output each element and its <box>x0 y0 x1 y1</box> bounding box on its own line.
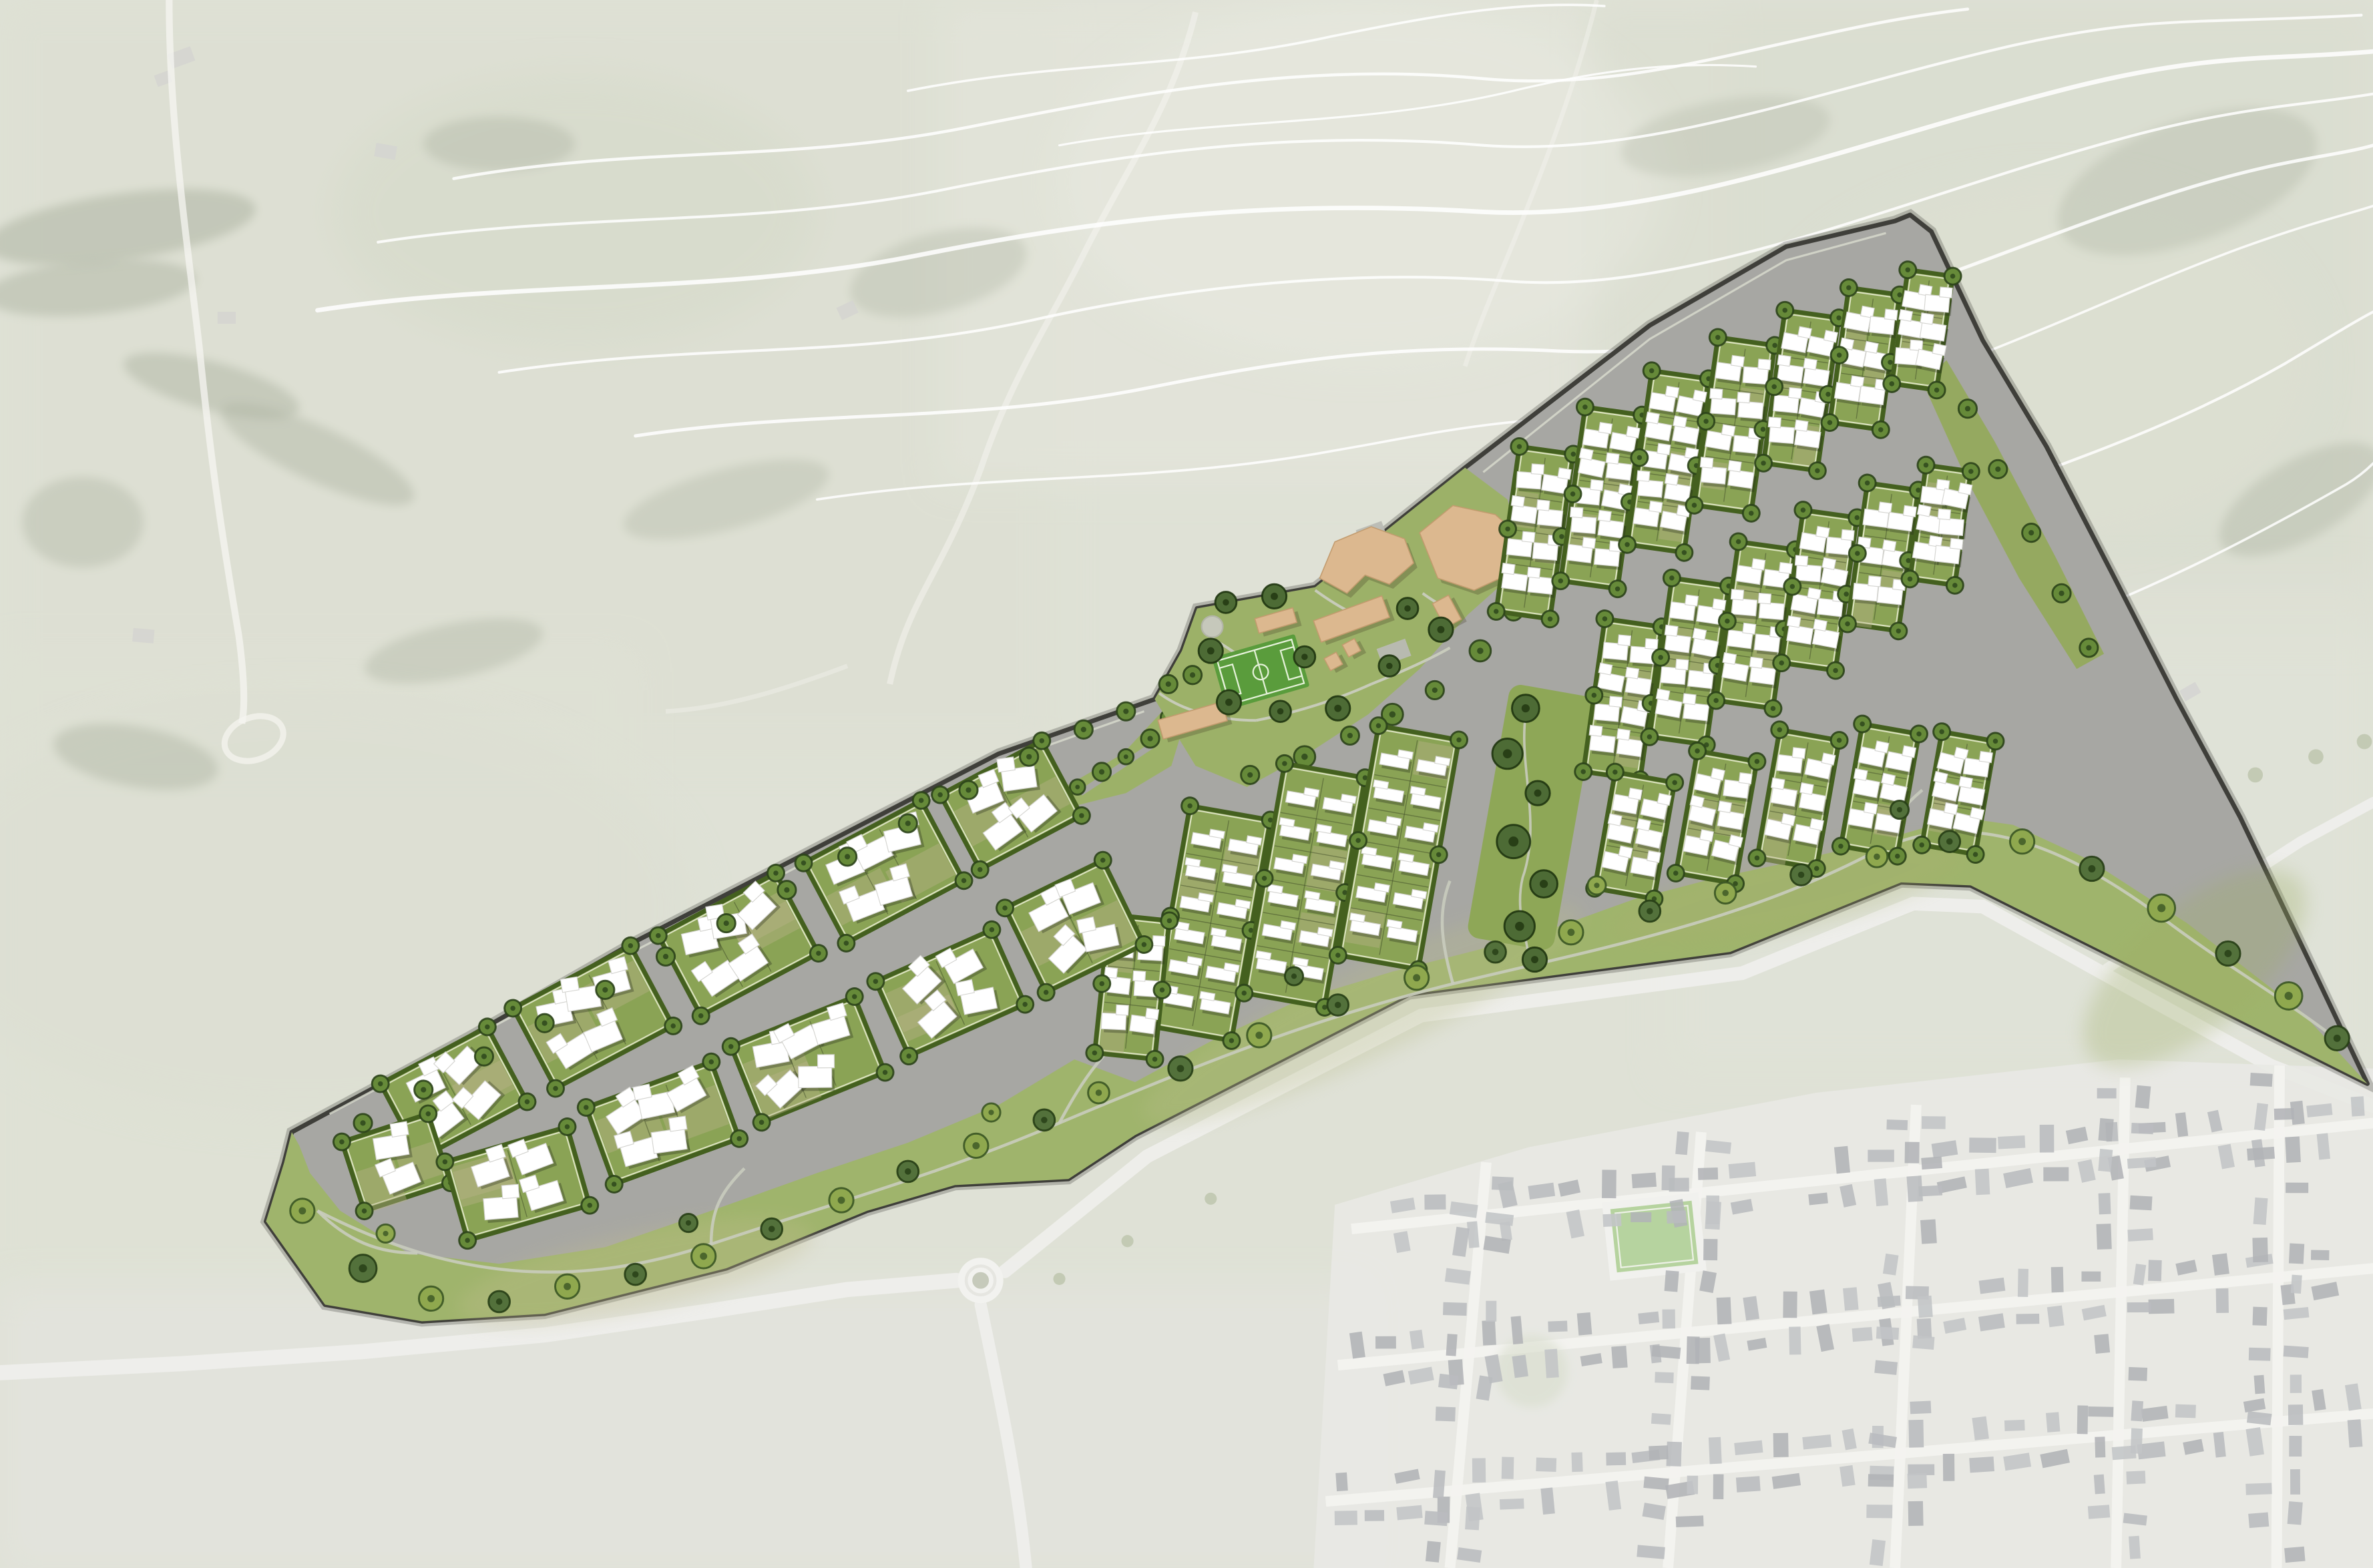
tree <box>2080 639 2098 657</box>
tree <box>1916 456 1935 475</box>
tree <box>761 1218 783 1240</box>
tree <box>1093 975 1111 993</box>
tree <box>1470 640 1491 662</box>
tree <box>1840 278 1858 297</box>
tree <box>1697 412 1715 431</box>
tree <box>1946 576 1964 595</box>
tree <box>1618 535 1637 554</box>
tree <box>2275 983 2302 1010</box>
tree <box>1588 876 1606 894</box>
tree <box>1492 738 1522 768</box>
tree <box>1584 686 1603 704</box>
tree <box>1890 800 1908 818</box>
tree <box>415 1081 433 1099</box>
tree <box>625 1264 646 1285</box>
tree <box>596 981 614 999</box>
tree <box>1285 967 1303 985</box>
tree <box>982 1103 1000 1121</box>
tree <box>1487 602 1506 621</box>
tree <box>1709 328 1727 346</box>
tree <box>1074 720 1092 738</box>
tree <box>1830 346 1849 364</box>
tree <box>1070 780 1085 795</box>
tree <box>1405 966 1429 990</box>
tree <box>1765 377 1783 396</box>
tree <box>1294 646 1315 668</box>
tree <box>1793 501 1812 519</box>
tree <box>1820 413 1839 432</box>
tree <box>1530 870 1558 898</box>
tree <box>1498 519 1517 538</box>
tree <box>1608 579 1627 598</box>
tree <box>1429 617 1453 641</box>
tree <box>1426 681 1444 699</box>
tree <box>2148 894 2175 922</box>
tree <box>1763 699 1782 718</box>
tree <box>897 1161 919 1182</box>
tree <box>1663 569 1681 587</box>
tree <box>1630 448 1649 467</box>
tree <box>1783 577 1801 596</box>
tree <box>964 1133 988 1157</box>
tree <box>1685 496 1703 515</box>
tree <box>354 1114 372 1132</box>
tree <box>1564 485 1582 503</box>
tree <box>535 1014 554 1032</box>
tree <box>1808 461 1827 480</box>
tree <box>1989 460 2007 478</box>
tree <box>1775 301 1794 320</box>
tree <box>1086 1044 1104 1062</box>
tree <box>1199 639 1223 663</box>
tree <box>1159 675 1177 693</box>
tree <box>2080 856 2104 880</box>
tree <box>1512 695 1539 722</box>
tree <box>839 848 857 866</box>
paved-circle <box>1202 616 1223 637</box>
tree <box>1858 473 1877 492</box>
tree <box>1944 267 1962 286</box>
tree <box>1241 766 1259 784</box>
tree <box>1540 609 1559 628</box>
tree <box>1651 648 1670 667</box>
tree <box>1882 374 1901 393</box>
tree <box>1270 701 1291 722</box>
tree <box>959 781 978 799</box>
tree <box>1092 763 1110 781</box>
tree <box>1118 749 1134 764</box>
tree <box>1183 666 1201 684</box>
tree <box>1958 400 1976 418</box>
tree <box>1872 421 1890 439</box>
tree <box>1866 846 1888 867</box>
tree <box>1889 621 1908 640</box>
tree <box>1485 941 1506 963</box>
tree <box>1848 544 1867 563</box>
tree <box>1034 1109 1055 1131</box>
tree <box>717 914 735 932</box>
tree <box>419 1286 443 1310</box>
tree <box>1742 504 1761 523</box>
tree <box>1117 702 1135 720</box>
tree <box>1247 1023 1271 1047</box>
tree <box>1928 380 1946 399</box>
tree <box>1595 609 1614 628</box>
tree <box>1510 437 1528 456</box>
tree <box>1939 831 1960 852</box>
tree <box>2053 584 2071 602</box>
tree <box>290 1199 314 1223</box>
tree <box>1838 614 1857 633</box>
tree <box>1168 1057 1193 1081</box>
tree <box>1640 728 1659 746</box>
tree <box>377 1224 395 1242</box>
tree <box>1262 584 1286 608</box>
tree <box>1551 571 1570 590</box>
tree <box>1675 543 1693 562</box>
tree <box>2010 830 2034 854</box>
tree <box>2022 524 2040 542</box>
tree <box>1526 781 1550 805</box>
tree <box>1341 726 1359 744</box>
tree <box>556 1274 580 1298</box>
tree <box>1326 696 1350 720</box>
tree <box>489 1291 510 1312</box>
tree <box>1898 260 1917 279</box>
tree <box>1215 592 1237 613</box>
tree <box>2325 1026 2349 1050</box>
tree <box>1327 995 1349 1016</box>
tree <box>1718 611 1737 630</box>
tree <box>1715 882 1736 904</box>
tree <box>1379 656 1400 677</box>
tree <box>1574 762 1592 781</box>
tree <box>829 1188 853 1212</box>
tree <box>679 1214 697 1232</box>
tree <box>1772 654 1791 672</box>
tree <box>1153 981 1171 999</box>
tree <box>778 881 796 899</box>
tree <box>1522 947 1546 971</box>
masterplan-aerial-map <box>0 0 2373 1568</box>
tree <box>899 814 917 832</box>
tree <box>1729 532 1748 551</box>
tree <box>1643 361 1661 380</box>
tree <box>1217 690 1241 714</box>
tree <box>1146 1050 1164 1068</box>
tree <box>349 1255 377 1282</box>
tree <box>1826 661 1845 680</box>
tree <box>1497 825 1530 858</box>
tree <box>1576 398 1594 417</box>
tree <box>1639 900 1661 922</box>
tree <box>1088 1082 1110 1103</box>
tree <box>1791 864 1812 886</box>
masterplan-canvas <box>0 0 2373 1568</box>
tree <box>1504 911 1534 941</box>
tree <box>656 947 674 965</box>
tree <box>1707 691 1725 710</box>
tree <box>475 1047 493 1065</box>
tree <box>1754 454 1773 473</box>
tree <box>1900 569 1919 588</box>
tree <box>1962 462 1980 481</box>
tree <box>692 1244 716 1268</box>
tree <box>2216 941 2240 965</box>
tree <box>1020 748 1038 766</box>
tree <box>1160 912 1178 930</box>
tree <box>1397 598 1418 619</box>
tree <box>1141 730 1159 748</box>
tree <box>1559 921 1583 945</box>
